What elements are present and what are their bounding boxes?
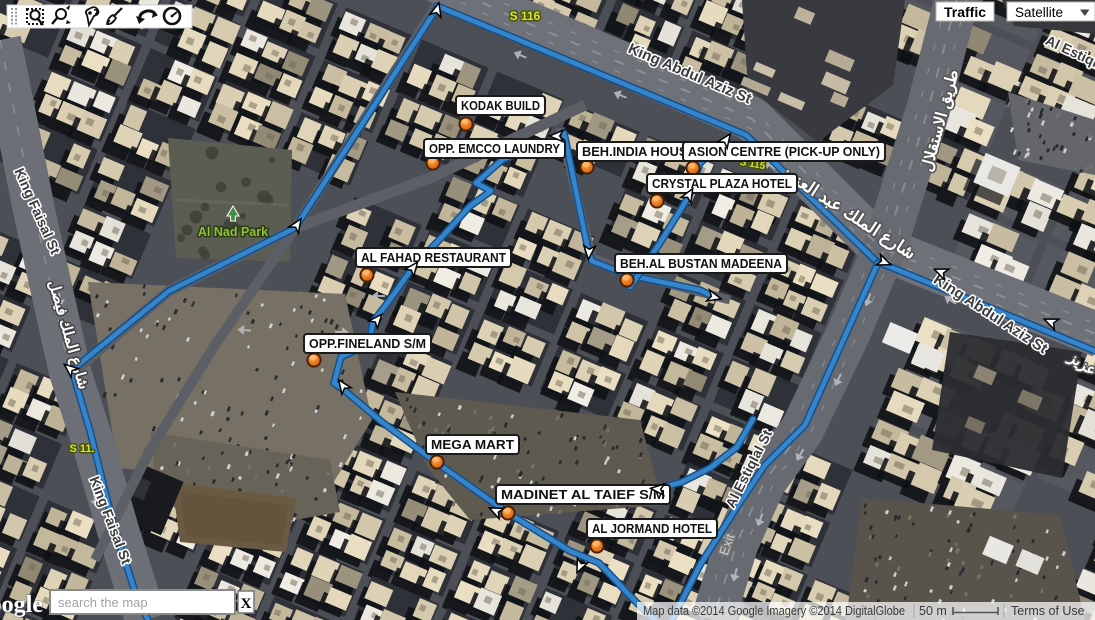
svg-text:ASION CENTRE (PICK-UP ONLY): ASION CENTRE (PICK-UP ONLY): [688, 145, 880, 159]
svg-text:X: X: [241, 596, 252, 612]
svg-text:Google: Google: [0, 592, 43, 618]
svg-text:Al Nad Park: Al Nad Park: [198, 225, 268, 239]
svg-text:BEH.AL BUSTAN MADEENA: BEH.AL BUSTAN MADEENA: [620, 257, 782, 271]
svg-text:S 11.: S 11.: [69, 443, 94, 455]
svg-text:MEGA MART: MEGA MART: [431, 438, 514, 452]
svg-text:AL JORMAND HOTEL: AL JORMAND HOTEL: [592, 522, 712, 536]
svg-text:KODAK BUILD: KODAK BUILD: [461, 99, 540, 113]
svg-text:OPP. EMCCO LAUNDRY: OPP. EMCCO LAUNDRY: [429, 142, 561, 156]
svg-text:search the map: search the map: [58, 595, 148, 610]
svg-text:Map data ©2014 Google Imagery: Map data ©2014 Google Imagery ©2014 Digi…: [643, 604, 905, 618]
svg-text:OPP.FINELAND S/M: OPP.FINELAND S/M: [309, 337, 426, 351]
svg-text:S 116: S 116: [510, 9, 541, 23]
svg-text:CRYSTAL PLAZA HOTEL: CRYSTAL PLAZA HOTEL: [652, 177, 792, 191]
svg-text:50 m: 50 m: [919, 604, 947, 618]
svg-text:Traffic: Traffic: [944, 4, 986, 20]
svg-text:BEH.INDIA HOUSE: BEH.INDIA HOUSE: [582, 145, 696, 159]
svg-text:Terms of Use: Terms of Use: [1011, 604, 1085, 618]
svg-text:AL FAHAD RESTAURANT: AL FAHAD RESTAURANT: [361, 251, 506, 265]
svg-text:MADINET AL TAIEF S/M: MADINET AL TAIEF S/M: [501, 488, 665, 502]
svg-text:Satellite: Satellite: [1015, 5, 1063, 20]
